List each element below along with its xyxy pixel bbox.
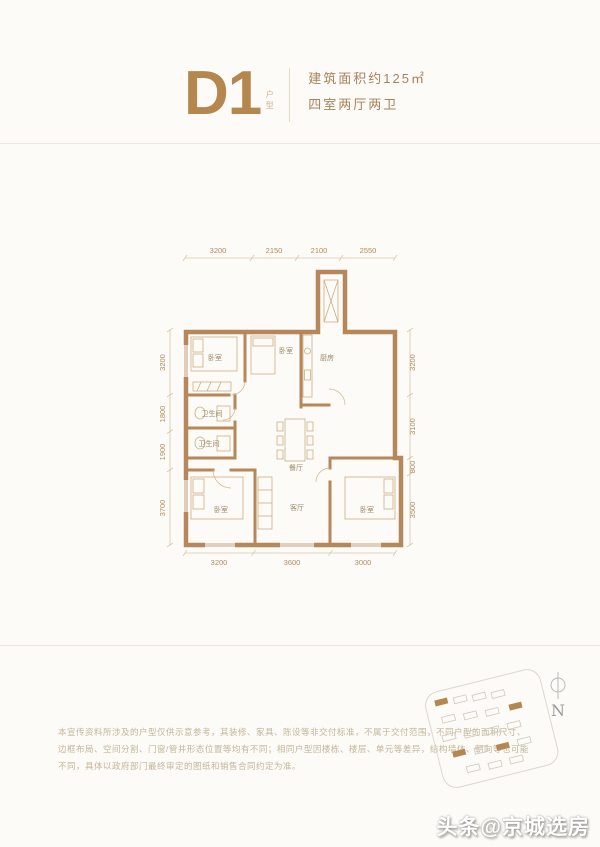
site-plan: N	[418, 652, 596, 815]
kitchen-counter-icon	[303, 335, 312, 397]
dim-bottom-3: 3000	[355, 558, 372, 567]
layout-text: 四室两厅两卫	[308, 96, 426, 113]
bed-icon	[251, 336, 275, 374]
dim-right-1: 3200	[408, 354, 417, 371]
floorplan-page: D1 户型 建筑面积约125㎡ 四室两厅两卫	[0, 0, 600, 847]
room-label-bedroom: 卧室	[208, 353, 222, 362]
dim-right-2: 3100	[408, 418, 417, 435]
header: D1 户型 建筑面积约125㎡ 四室两厅两卫	[184, 66, 426, 122]
north-label: N	[551, 701, 565, 720]
room-label-bathroom: 卫生间	[202, 409, 223, 418]
section-divider-top	[0, 143, 600, 144]
area-text: 建筑面积约125㎡	[308, 70, 426, 87]
room-label-bedroom: 卧室	[214, 505, 228, 514]
wardrobe-icon	[193, 382, 231, 391]
floor-plan: 3200 2150 2100 2550 3200 3600 3000 3200 …	[105, 225, 435, 580]
doors-layer	[213, 381, 345, 488]
disclaimer: 本宣传资料所涉及的户型仅供示意参考，其装修、家具、陈设等非交付标准，不属于交付范…	[58, 724, 393, 775]
dim-bottom-2: 3600	[284, 558, 301, 567]
room-label-dining: 餐厅	[289, 463, 303, 472]
north-compass: N	[551, 672, 565, 720]
sofa-icon	[258, 477, 272, 529]
site-boundary-group	[423, 667, 561, 791]
dim-left-1: 3200	[158, 354, 167, 371]
unit-type-label: 户型	[264, 90, 275, 112]
dim-right-3: 800	[408, 461, 417, 474]
dim-top-1: 3200	[210, 246, 227, 255]
room-label-bedroom: 卧室	[360, 505, 374, 514]
dim-top-3: 2100	[311, 246, 328, 255]
header-info: 建筑面积约125㎡ 四室两厅两卫	[308, 66, 426, 113]
disclaimer-line: 本宣传资料所涉及的户型仅供示意参考，其装修、家具、陈设等非交付标准，不属于交付范…	[58, 724, 393, 741]
dim-left-3: 1900	[158, 444, 167, 461]
room-label-living: 客厅	[290, 503, 304, 512]
shaft-icon	[324, 280, 338, 322]
dim-bottom-1: 3200	[211, 558, 228, 567]
room-label-bathroom: 卫生间	[199, 439, 220, 448]
section-divider-bottom	[0, 645, 600, 646]
dining-table-icon	[277, 419, 313, 461]
unit-code: D1	[184, 66, 261, 122]
bed-icon	[191, 337, 237, 371]
dim-left-2: 1800	[158, 406, 167, 423]
dim-right-4: 3500	[408, 502, 417, 519]
dim-left-4: 3700	[158, 500, 167, 517]
watermark: 头条@京城选房	[437, 811, 590, 841]
floor-plan-svg: 3200 2150 2100 2550 3200 3600 3000 3200 …	[105, 225, 435, 575]
room-label-bedroom: 卧室	[279, 346, 293, 355]
dim-top-2: 2150	[266, 246, 283, 255]
site-plan-svg: N	[418, 652, 596, 810]
header-divider	[289, 68, 290, 122]
dim-top-4: 2550	[360, 246, 377, 255]
furniture-layer	[191, 280, 395, 529]
disclaimer-line: 不同，具体以政府部门最终审定的图纸和销售合同约定为准。	[58, 758, 393, 775]
disclaimer-line: 边框布局、空间分割、门窗/管井形态位置等均有不同；相同户型因楼栋、楼层、单元等差…	[58, 741, 393, 758]
site-buildings	[433, 680, 535, 778]
room-label-kitchen: 厨房	[320, 353, 334, 362]
